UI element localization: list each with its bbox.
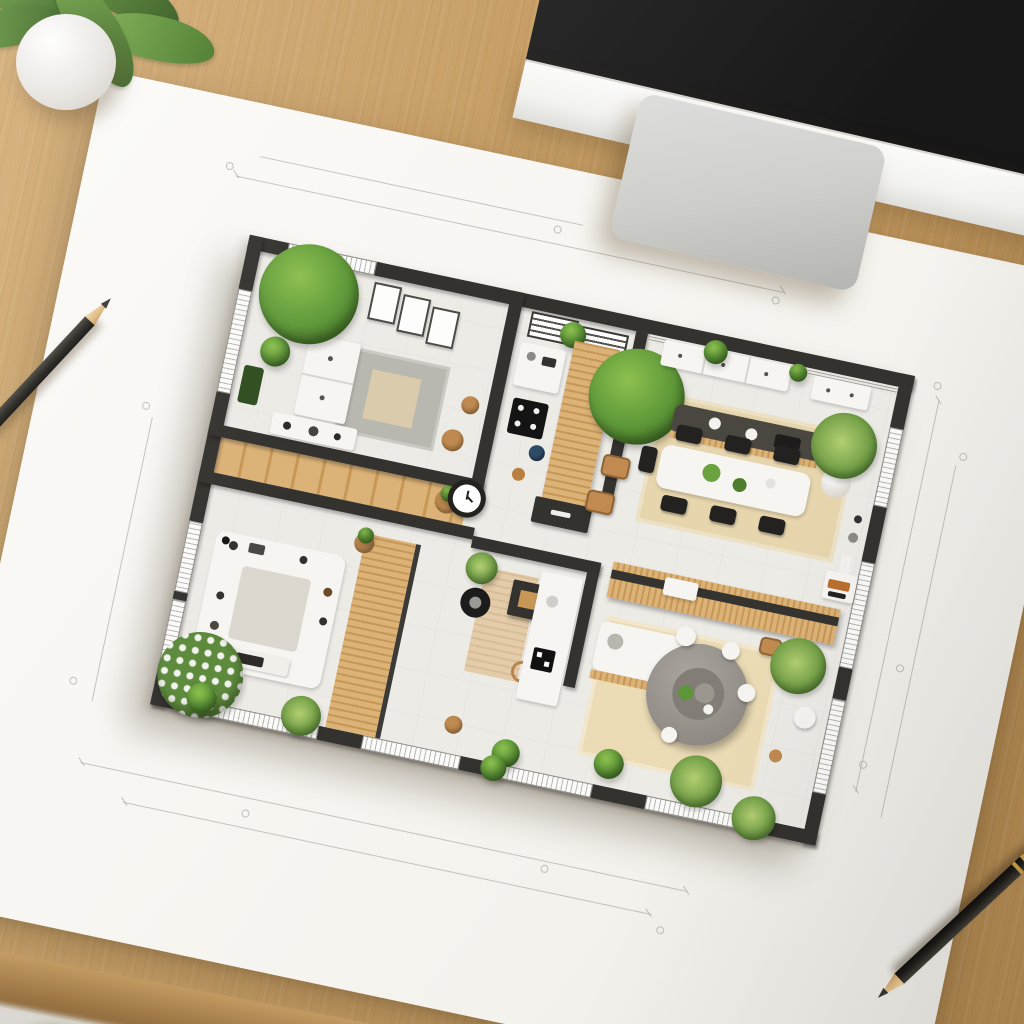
daybed-pillow [606, 632, 625, 651]
sideboard-knob [849, 393, 854, 398]
dimension-tick [780, 286, 786, 295]
table-bowl-green [701, 462, 722, 483]
window-strip [174, 520, 203, 593]
clay-pot [460, 395, 481, 416]
dimension-mark [959, 452, 968, 461]
dimension-mark [933, 381, 942, 390]
bed-item [216, 591, 225, 600]
planter-box [237, 365, 264, 406]
dimension-line [92, 417, 153, 701]
bed-item [299, 555, 308, 564]
sideboard-divider [744, 357, 751, 383]
vanity-mat [530, 647, 556, 673]
wardrobe-knob [319, 395, 325, 401]
table-dish [765, 477, 777, 489]
picture-frame [396, 294, 431, 337]
vanity-console [821, 570, 858, 604]
console-drawer [827, 579, 850, 592]
counter-item [541, 356, 557, 368]
picture-frame [367, 282, 402, 325]
bed-tray [248, 542, 266, 555]
bowl [527, 444, 546, 463]
sideboard-knob [721, 363, 726, 368]
clay-pot [443, 714, 464, 735]
bed-item [322, 587, 333, 598]
dresser-item [282, 421, 291, 430]
stove [506, 397, 549, 440]
stove-burner [514, 420, 521, 427]
desk-scene [0, 0, 1024, 1024]
stove-burner [533, 408, 540, 415]
bedroom1-rug-runner [362, 369, 421, 428]
window-strip [492, 763, 593, 797]
wall-interior [470, 290, 525, 492]
dimension-mark [656, 926, 665, 935]
dimension-mark [540, 864, 549, 873]
island-label [550, 509, 571, 518]
basin-drain [468, 596, 482, 610]
table-greens [731, 477, 748, 494]
window-strip [812, 698, 846, 795]
dimension-mark [895, 664, 904, 673]
wall-fixture [853, 515, 862, 524]
dimension-mark [141, 401, 150, 410]
dimension-line [881, 465, 957, 817]
stove-burner [517, 404, 524, 411]
sideboard-knob [678, 353, 683, 358]
wardrobe-shelf-line [302, 373, 353, 386]
clay-pot [768, 748, 783, 763]
wall-fixture [847, 532, 859, 544]
side-table [792, 705, 818, 731]
vanity-mat-detail [544, 661, 550, 667]
stove-burner [530, 423, 537, 430]
sideboard-knob [764, 372, 769, 377]
dresser-item [333, 433, 341, 441]
dimension-tick [233, 170, 239, 179]
picture-frame [425, 306, 460, 349]
console-item [827, 591, 846, 600]
bench-cushion [708, 416, 722, 430]
dimension-mark [553, 225, 562, 234]
dimension-mark [241, 809, 250, 818]
dresser-item [308, 425, 320, 437]
bowl [511, 467, 526, 482]
counter-item [526, 351, 537, 362]
sideboard-knob [826, 388, 831, 393]
bed-item [209, 620, 220, 631]
vanity-mat-detail [536, 652, 542, 658]
plant-pot [16, 14, 116, 110]
dimension-mark [771, 296, 780, 305]
bed-mattress [228, 566, 312, 653]
dimension-line [123, 802, 651, 915]
wardrobe-knob [327, 356, 333, 362]
dimension-mark [858, 760, 867, 769]
bed-item [228, 540, 239, 551]
dimension-mark [69, 676, 78, 685]
window-strip [873, 427, 903, 508]
sink [545, 594, 559, 608]
clay-pot [440, 427, 466, 453]
kitchen-counter [512, 342, 566, 395]
bed-item [318, 617, 327, 626]
window-strip [360, 735, 461, 769]
floor-plan-model [150, 235, 915, 846]
